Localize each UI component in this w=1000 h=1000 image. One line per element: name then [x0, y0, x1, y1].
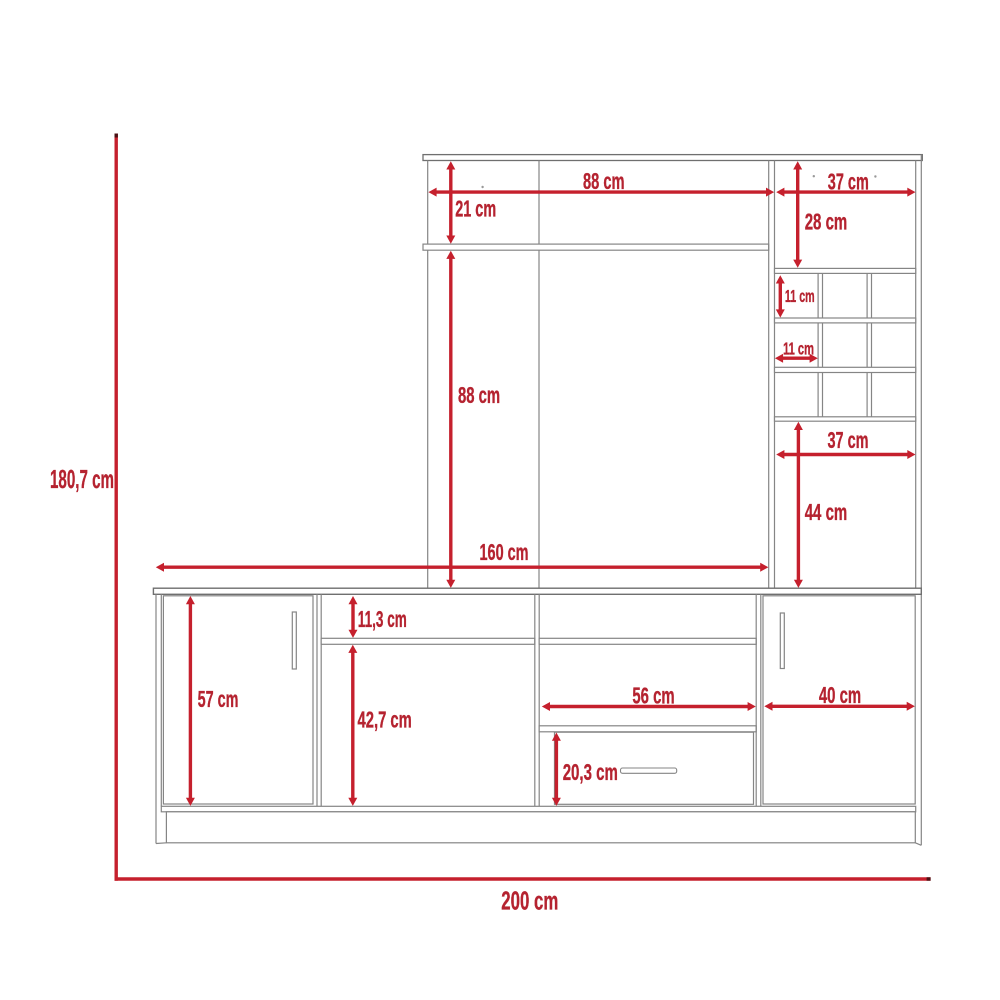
svg-text:88 cm: 88 cm [583, 168, 625, 194]
svg-text:57 cm: 57 cm [198, 686, 239, 712]
svg-text:11,3 cm: 11,3 cm [358, 606, 407, 632]
svg-text:37 cm: 37 cm [828, 169, 869, 195]
svg-text:160 cm: 160 cm [480, 539, 529, 565]
svg-text:20,3 cm: 20,3 cm [563, 759, 618, 785]
svg-text:42,7 cm: 42,7 cm [358, 707, 412, 733]
svg-text:21 cm: 21 cm [455, 196, 496, 222]
svg-text:28 cm: 28 cm [805, 208, 848, 234]
svg-text:44 cm: 44 cm [805, 499, 848, 525]
svg-text:200 cm: 200 cm [501, 886, 558, 916]
svg-text:11 cm: 11 cm [785, 286, 815, 306]
svg-text:37 cm: 37 cm [828, 427, 869, 453]
svg-text:56 cm: 56 cm [632, 682, 674, 708]
svg-text:11 cm: 11 cm [783, 338, 814, 358]
svg-text:180,7 cm: 180,7 cm [50, 464, 114, 494]
svg-text:88 cm: 88 cm [458, 382, 500, 408]
svg-text:40 cm: 40 cm [819, 682, 861, 708]
